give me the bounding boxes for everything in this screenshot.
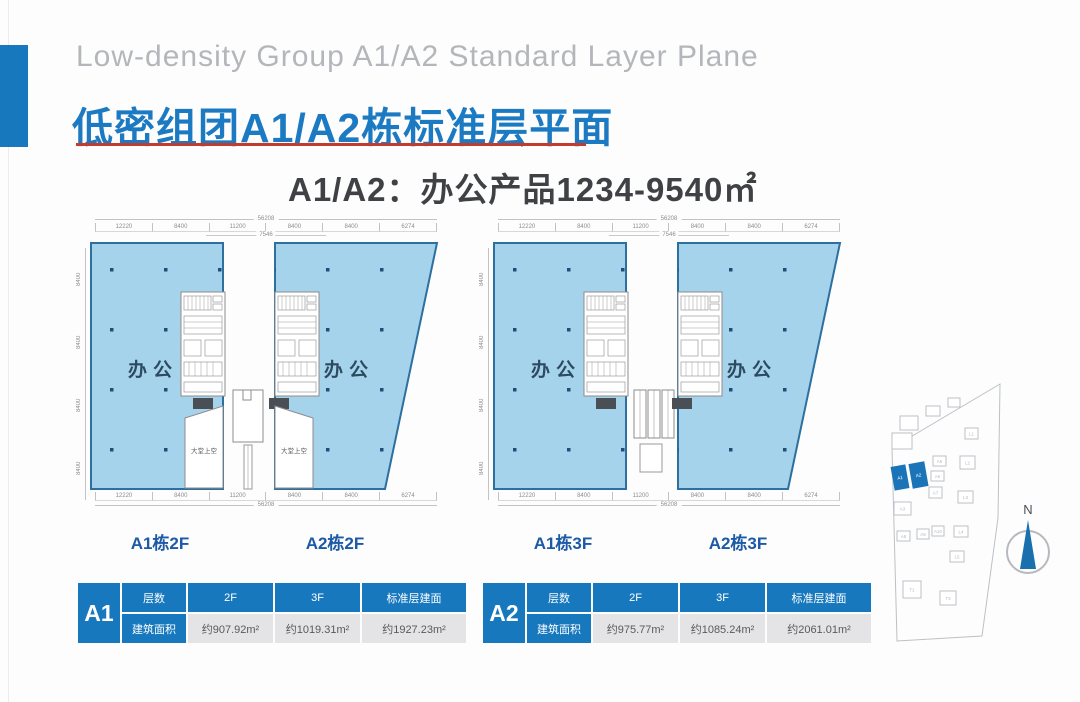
svg-text:T1: T1 (909, 587, 915, 592)
svg-text:T3: T3 (945, 596, 951, 601)
table-row-label: 建筑面积 (527, 614, 591, 643)
site-building: L1 (965, 428, 978, 439)
site-building: A10 (932, 526, 944, 536)
table-row-label: 建筑面积 (122, 614, 186, 643)
area-table-a1: A1 层数 2F 3F 标准层建面 建筑面积 约907.92m² 约1019.3… (78, 583, 466, 643)
svg-text:A6: A6 (935, 474, 941, 479)
compass: N (1007, 502, 1049, 573)
service-block (193, 398, 213, 409)
svg-text:L3: L3 (963, 495, 969, 500)
dim-seg: 8400 (323, 223, 380, 232)
site-key-map: N A1A2A5A6A7A3A8A9A10L1L2L3L4L5T1T3 (870, 378, 1080, 673)
plan-2f-drawing: 大堂上空 大堂上空 办公 办公 (85, 240, 447, 492)
floor-plan-3f: 56208 12220 8400 11200 8400 8400 6274 75… (488, 215, 850, 509)
site-building: A5 (933, 456, 946, 466)
room-label-office: 办公 (324, 358, 374, 381)
table-value: 约907.92m² (188, 614, 273, 643)
dim-seg: 12220 (95, 223, 153, 232)
title-english: Low-density Group A1/A2 Standard Layer P… (76, 40, 759, 74)
compass-needle-icon (1020, 520, 1036, 569)
site-building (900, 416, 918, 430)
site-building: L2 (960, 456, 975, 469)
dimension-center: 7546 (609, 232, 729, 239)
site-building: L5 (950, 551, 964, 562)
room-label-office: 办公 (531, 358, 581, 381)
svg-text:L4: L4 (958, 529, 964, 534)
svg-text:L5: L5 (954, 554, 960, 559)
service-block (596, 398, 616, 409)
dimension-total-top: 56208 (498, 215, 840, 223)
table-header-2f: 2F (593, 583, 678, 612)
table-header-3f: 3F (680, 583, 765, 612)
site-building (948, 398, 960, 407)
lobby-void-label: 大堂上空 (191, 446, 218, 455)
table-building-cell: A2 (483, 583, 525, 643)
floor-plan-2f: 56208 12220 8400 11200 8400 8400 6274 75… (85, 215, 447, 509)
dimension-segments-bottom: 12220 8400 11200 8400 8400 6274 (95, 492, 437, 501)
subtitle-product-range: A1/A2：办公产品1234-9540㎡ (288, 163, 757, 211)
site-building: A9 (917, 529, 929, 539)
table-header-floors: 层数 (122, 583, 186, 612)
dimension-total-bottom: 56208 (95, 501, 437, 509)
dim-seg: 8400 (153, 223, 210, 232)
svg-text:A7: A7 (933, 490, 939, 495)
site-building (926, 406, 940, 416)
table-value: 约1927.23m² (362, 614, 466, 643)
site-building: A6 (931, 471, 944, 481)
stair-core (678, 292, 722, 396)
floor-label-a2-2f: A2栋2F (270, 529, 400, 554)
table-header-standard: 标准层建面 (362, 583, 466, 612)
table-value: 约975.77m² (593, 614, 678, 643)
service-block (672, 398, 692, 409)
dimension-total-top: 56208 (95, 215, 437, 223)
svg-text:A10: A10 (934, 529, 943, 534)
site-building: L4 (954, 526, 968, 537)
accent-bar (0, 45, 28, 147)
dimension-segments-side: 8400 8400 8400 8400 (76, 248, 86, 500)
table-value: 约1085.24m² (680, 614, 765, 643)
table-header-3f: 3F (275, 583, 360, 612)
room-label-office: 办公 (727, 358, 777, 381)
dimension-segments-side: 8400 8400 8400 8400 (479, 248, 489, 500)
table-building-cell: A1 (78, 583, 120, 643)
dimension-total-bottom: 56208 (498, 501, 840, 509)
table-value: 约1019.31m² (275, 614, 360, 643)
dimension-segments-bottom: 12220 8400 11200 8400 8400 6274 (498, 492, 840, 501)
table-header-2f: 2F (188, 583, 273, 612)
floor-label-a1-3f: A1栋3F (498, 529, 628, 554)
svg-text:A5: A5 (937, 459, 943, 464)
table-header-standard: 标准层建面 (767, 583, 871, 612)
stair-core (275, 292, 319, 396)
site-building: A3 (894, 502, 911, 515)
compass-north-label: N (1023, 502, 1032, 517)
floor-label-a2-3f: A2栋3F (673, 529, 803, 554)
dim-seg: 6274 (380, 223, 437, 232)
site-map-svg: N A1A2A5A6A7A3A8A9A10L1L2L3L4L5T1T3 (870, 378, 1080, 668)
room-label-office: 办公 (128, 358, 178, 381)
svg-text:L2: L2 (965, 460, 971, 465)
svg-text:A3: A3 (900, 506, 906, 511)
title-underline (76, 143, 586, 146)
site-building-highlight: A2 (909, 462, 928, 488)
lobby-void-left: 大堂上空 (185, 406, 223, 488)
site-building: T3 (940, 591, 956, 605)
svg-text:A8: A8 (901, 534, 907, 539)
table-value: 约2061.01m² (767, 614, 871, 643)
floor-label-a1-2f: A1栋2F (95, 529, 225, 554)
site-building: A7 (929, 487, 942, 498)
site-building: L3 (958, 491, 973, 503)
site-building-highlight: A1 (891, 465, 909, 490)
dimension-center: 7546 (206, 232, 326, 239)
stair-core (181, 292, 225, 396)
stair-core (584, 292, 628, 396)
svg-text:A9: A9 (920, 532, 926, 537)
table-header-floors: 层数 (527, 583, 591, 612)
site-building (892, 433, 912, 449)
site-building: A8 (897, 531, 910, 541)
area-table-a2: A2 层数 2F 3F 标准层建面 建筑面积 约975.77m² 约1085.2… (483, 583, 871, 643)
lobby-void-right: 大堂上空 (275, 406, 313, 488)
plan-3f-drawing: 办公 办公 (488, 240, 850, 492)
svg-text:L1: L1 (969, 431, 975, 436)
lobby-void-label: 大堂上空 (281, 446, 308, 455)
site-building: T1 (903, 581, 921, 598)
